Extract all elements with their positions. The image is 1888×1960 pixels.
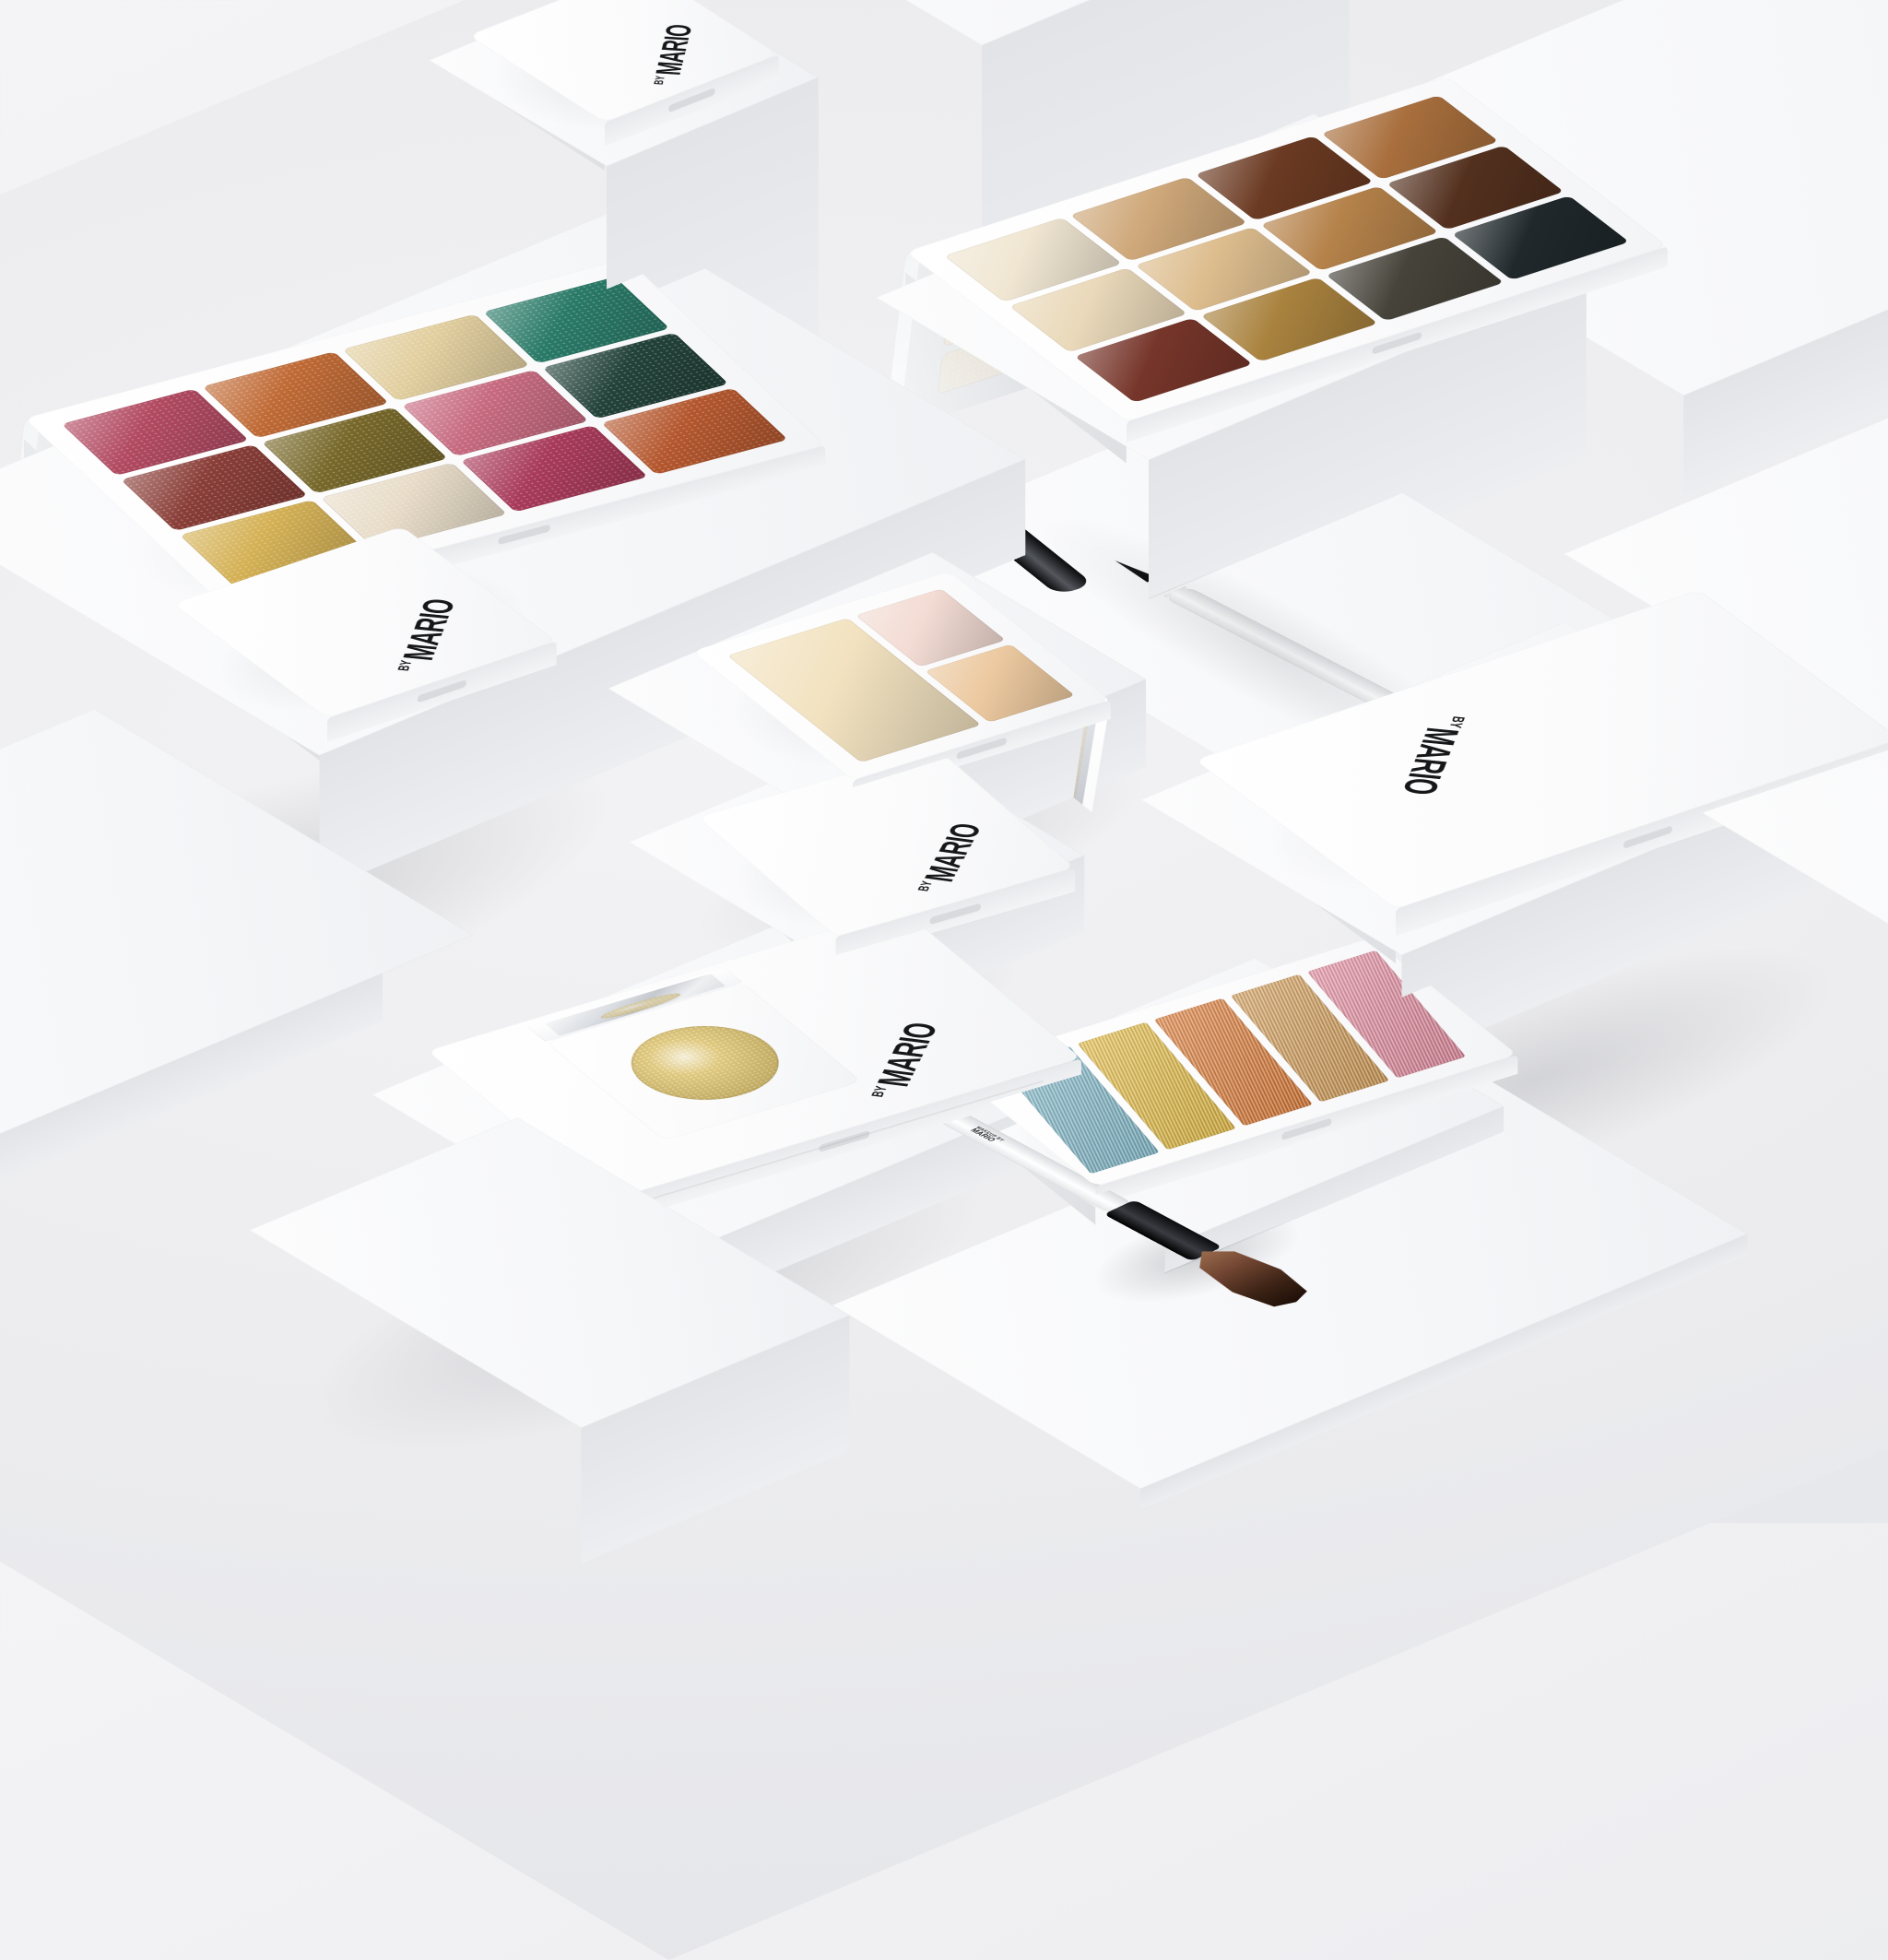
brand-logo-name: MARIO xyxy=(923,822,985,883)
brand-logo: BYMARIO xyxy=(869,1014,945,1100)
brand-logo-by: BY xyxy=(1447,715,1467,728)
brush-label-line1: MAKEUP BY xyxy=(974,1127,1005,1142)
gold-single-compact xyxy=(546,983,862,1141)
highlighter-pan xyxy=(604,1012,807,1114)
brand-logo: BYMARIO xyxy=(1396,714,1466,803)
brand-logo: BYMARIO xyxy=(916,816,988,894)
brand-logo: BYMARIO xyxy=(653,18,697,86)
product-photo-canvas: { "brand": { "by": "BY", "name": "MARIO"… xyxy=(0,0,1888,1523)
brand-logo-name: MARIO xyxy=(655,24,696,76)
brand-logo-name: MARIO xyxy=(875,1021,941,1088)
brand-logo-name: MARIO xyxy=(400,598,457,662)
brand-logo: BYMARIO xyxy=(395,592,460,674)
brand-logo-by: BY xyxy=(869,1085,889,1098)
brand-logo-by: BY xyxy=(395,660,413,672)
brush-label: MAKEUP BY MARIO xyxy=(968,1127,1005,1146)
brand-logo-name: MARIO xyxy=(1398,726,1461,796)
brand-logo-by: BY xyxy=(653,76,667,85)
brand-logo-by: BY xyxy=(916,880,934,891)
